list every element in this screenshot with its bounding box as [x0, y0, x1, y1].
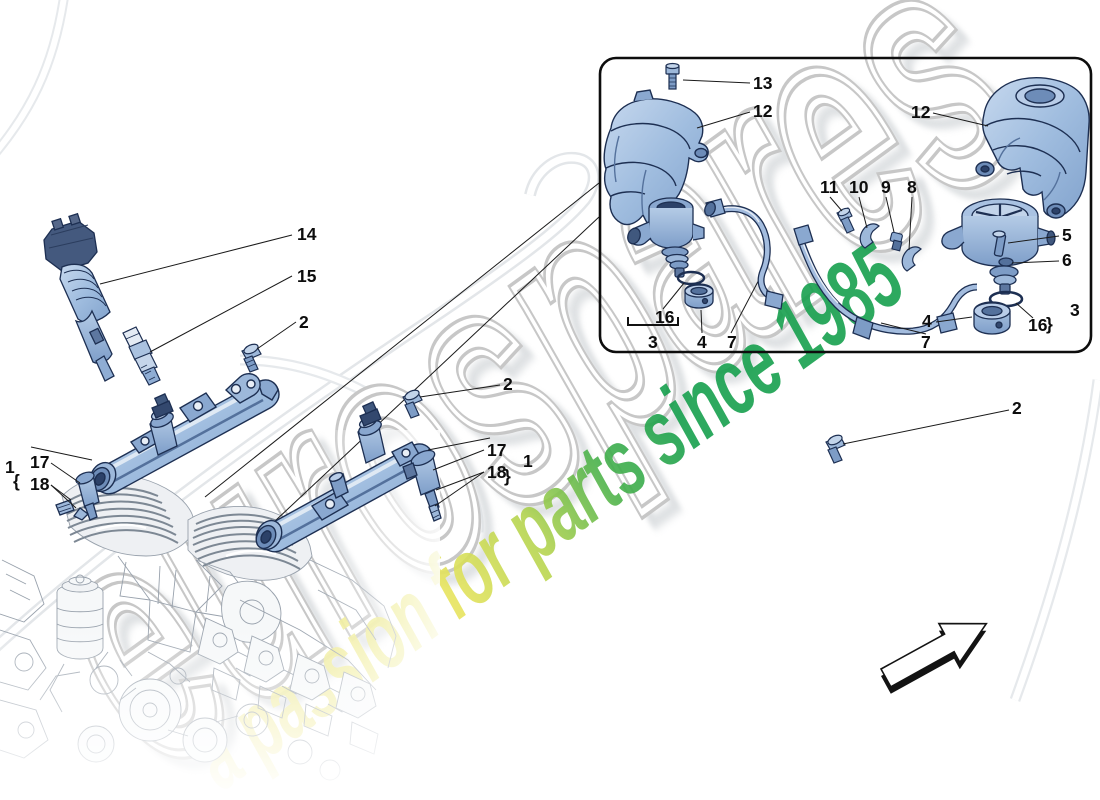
svg-text:4: 4	[697, 332, 707, 352]
svg-text:9: 9	[881, 177, 891, 197]
svg-text:17: 17	[30, 452, 49, 472]
svg-text:6: 6	[1062, 250, 1072, 270]
svg-text:12: 12	[911, 102, 931, 122]
svg-text:3: 3	[1070, 300, 1080, 320]
svg-text:8: 8	[907, 177, 917, 197]
svg-text:15: 15	[297, 266, 317, 286]
svg-text:7: 7	[727, 332, 737, 352]
svg-text:{: {	[13, 471, 20, 491]
svg-text:16: 16	[655, 307, 675, 327]
svg-text:2: 2	[1012, 398, 1022, 418]
svg-text:11: 11	[820, 177, 839, 197]
svg-text:7: 7	[921, 332, 931, 352]
svg-text:4: 4	[922, 311, 932, 331]
svg-text:18: 18	[30, 474, 50, 494]
svg-text:}: }	[504, 466, 511, 486]
svg-text:2: 2	[299, 312, 309, 332]
svg-text:13: 13	[753, 73, 773, 93]
svg-text:16: 16	[1028, 315, 1048, 335]
svg-text:12: 12	[753, 101, 773, 121]
svg-text:17: 17	[487, 440, 506, 460]
svg-text:14: 14	[297, 224, 317, 244]
svg-text:2: 2	[503, 374, 513, 394]
svg-text:1: 1	[523, 451, 533, 471]
svg-text:10: 10	[849, 177, 869, 197]
svg-text:3: 3	[648, 332, 658, 352]
svg-text:5: 5	[1062, 225, 1072, 245]
